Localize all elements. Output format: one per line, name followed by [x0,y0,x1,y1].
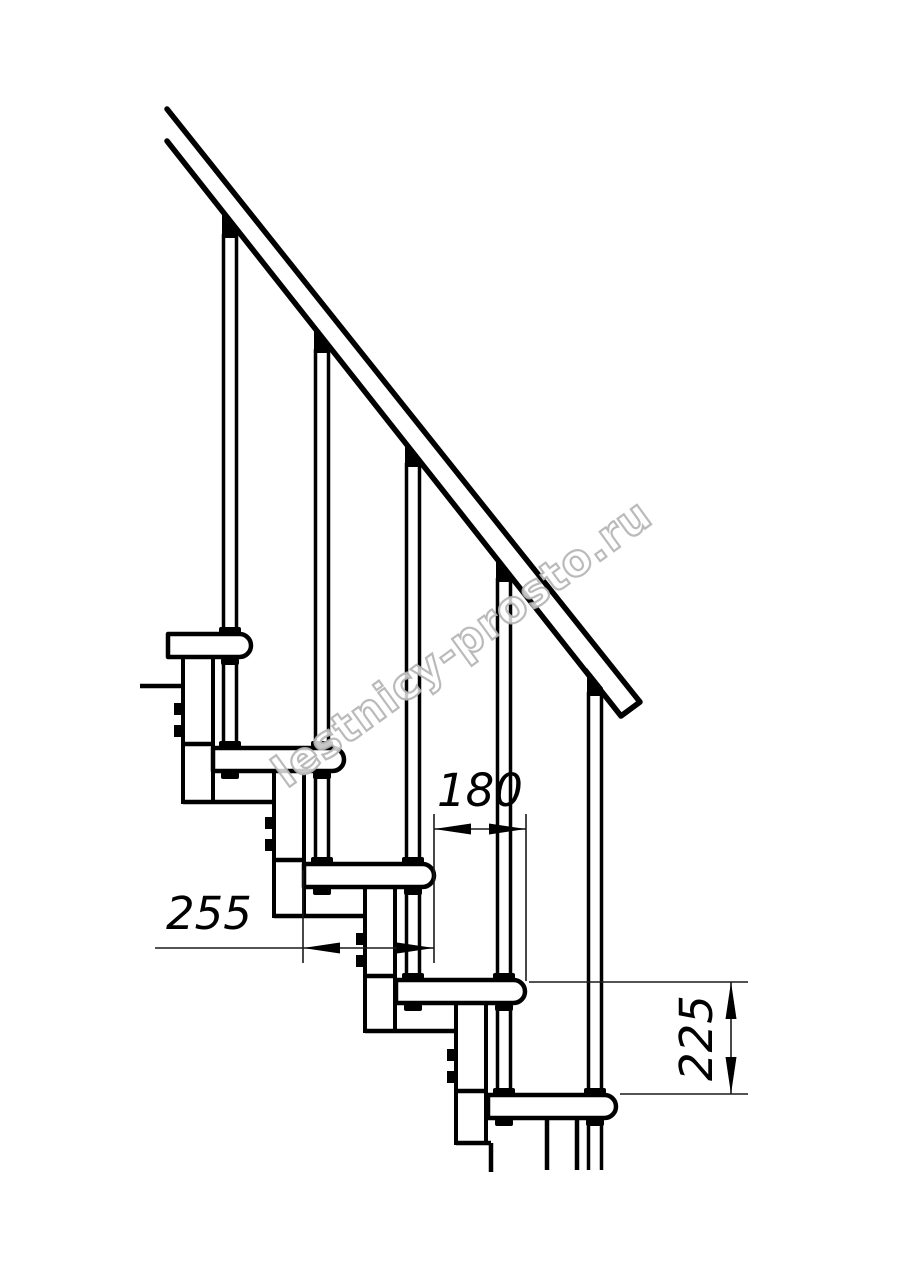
tread-1 [168,634,251,657]
baluster-nut [404,888,422,895]
module-bolt [174,725,184,737]
tread-4 [396,980,525,1003]
module-box [365,887,395,1031]
baluster-foot [493,973,515,980]
arrow-right [397,943,434,954]
module-bolt [447,1071,457,1083]
arrow-down [726,1057,737,1094]
module-bolt [265,817,275,829]
staircase-drawing: 180 255 225 lestnicy-prosto.ru [0,0,914,1280]
baluster-1 [219,210,241,665]
module-bolt [356,955,366,967]
module-bolt [356,933,366,945]
support-module-5-partial [547,1118,577,1170]
module-bolt [265,839,275,851]
dimension-label-rise: 225 [670,995,723,1081]
baluster-5 [584,668,606,1126]
module-bolt [174,703,184,715]
module-box [456,1003,486,1143]
support-module-4 [447,1003,491,1172]
tread-5 [488,1095,616,1118]
drawing-page: 180 255 225 lestnicy-prosto.ru [0,0,914,1280]
dimension-rise: 225 [529,982,748,1094]
baluster-foot [402,857,424,864]
baluster-nut [495,1004,513,1011]
arrow-left [303,943,340,954]
baluster-nut [221,658,239,665]
dimension-label-run: 180 [437,764,523,817]
arrow-up [726,982,737,1019]
module-bolt [447,1049,457,1061]
arrow-left [434,824,471,835]
module-box [183,657,213,802]
baluster-foot [219,627,241,634]
support-module-1 [140,657,274,802]
baluster-nut [586,1119,604,1126]
dimension-label-depth: 255 [166,887,252,940]
arrow-right [489,824,526,835]
baluster-foot [584,1088,606,1095]
tread-3 [304,864,434,887]
